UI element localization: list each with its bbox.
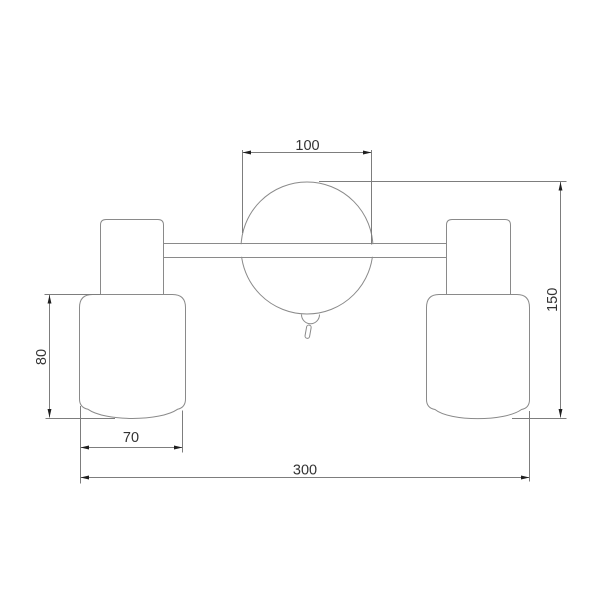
svg-text:300: 300: [293, 463, 317, 479]
svg-text:150: 150: [545, 288, 561, 312]
svg-text:70: 70: [123, 430, 139, 446]
svg-text:80: 80: [34, 349, 50, 365]
svg-text:100: 100: [295, 138, 319, 154]
